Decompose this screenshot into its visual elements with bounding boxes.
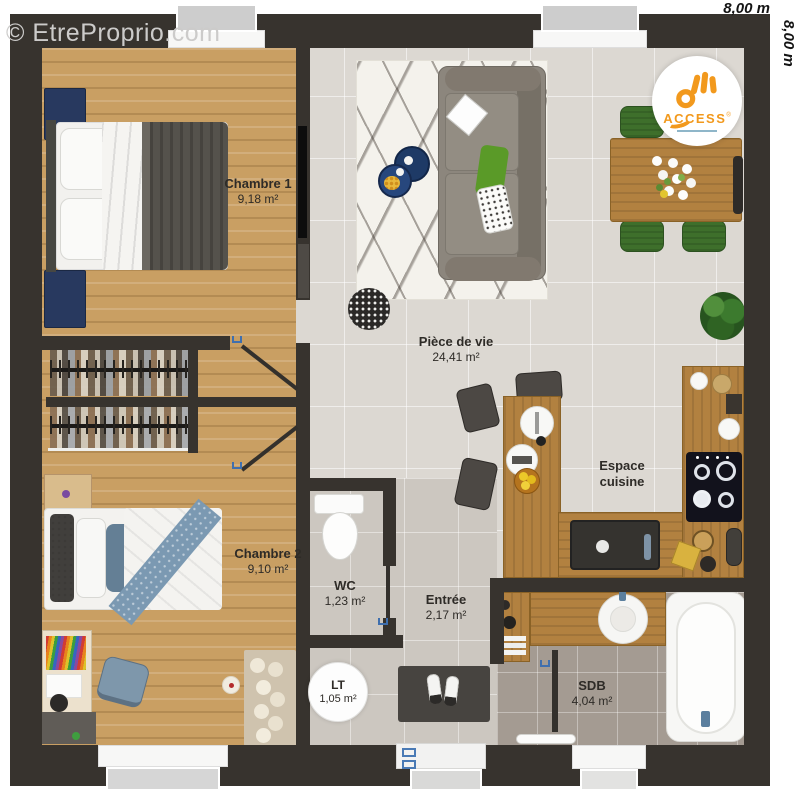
wall-dressing-top — [42, 336, 230, 350]
room-label-chambre1: Chambre 1 9,18 m² — [224, 176, 291, 207]
desk-paper — [46, 674, 82, 698]
flower-centerpiece — [652, 156, 662, 166]
sofa-armrest — [445, 67, 541, 91]
room-area: 4,04 m² — [572, 694, 613, 709]
corner-plant — [700, 292, 746, 340]
room-name: SDB — [572, 678, 613, 694]
pillow-white — [76, 518, 106, 598]
dining-chair — [620, 220, 664, 252]
room-name: Entrée — [426, 592, 467, 608]
hand-ok-icon — [671, 70, 723, 110]
room-name: WC — [325, 578, 366, 594]
dark-plate — [700, 556, 716, 572]
sink-faucet-icon — [644, 534, 651, 560]
cooktop — [686, 452, 742, 522]
outer-wall-right — [744, 14, 770, 786]
closet-shelf-edge — [48, 448, 194, 451]
flower-yellow-dot — [660, 190, 668, 198]
front-door-step — [410, 769, 482, 791]
wall-kitchen-sdb — [497, 578, 744, 592]
flower-greens — [664, 178, 671, 185]
pouf — [348, 288, 390, 330]
colored-pencils — [46, 636, 86, 670]
dark-end-chair — [733, 156, 743, 214]
room-area: 9,10 m² — [234, 562, 301, 577]
wall-dressing-mid — [46, 397, 296, 407]
window-shutter — [106, 767, 220, 791]
bed-chambre2 — [44, 508, 222, 610]
hanger-ticks — [50, 360, 192, 378]
room-label-sdb: SDB 4,04 m² — [572, 678, 613, 709]
bath-sink-basin — [610, 606, 636, 632]
headboard — [46, 120, 56, 272]
room-label-piece-de-vie: Pièce de vie 24,41 m² — [419, 334, 493, 365]
nightstand-bottom — [44, 270, 86, 328]
room-label-cuisine: Espace cuisine — [587, 458, 657, 491]
burner — [718, 492, 734, 508]
logo-tagline-bar — [677, 130, 717, 132]
bottle — [503, 616, 516, 629]
pillow-dark — [50, 514, 74, 602]
front-door-handle-icon — [402, 748, 416, 757]
wall-sdb-left — [490, 578, 504, 664]
washing-machine: LT 1,05 m² — [308, 662, 368, 722]
towel-rail — [516, 734, 576, 744]
spice-box — [726, 394, 742, 414]
dimension-top: 8,00 m — [712, 0, 770, 17]
window-shutter — [580, 769, 638, 791]
flower-bowl — [384, 176, 400, 190]
room-name: Chambre 1 — [224, 176, 291, 192]
green-toy — [72, 732, 80, 740]
mug — [404, 156, 413, 165]
wall-wc-bottom — [296, 635, 403, 648]
room-area: 24,41 m² — [419, 350, 493, 365]
hanger-ticks — [50, 416, 192, 434]
room-name: Espace cuisine — [587, 458, 657, 491]
burner — [693, 490, 711, 508]
toilet — [314, 494, 364, 514]
room-area: 9,18 m² — [224, 192, 291, 207]
window-shutter — [541, 4, 639, 32]
sofa-back — [517, 73, 541, 273]
dining-table — [610, 138, 742, 222]
bed-chambre1 — [46, 120, 228, 272]
dining-chair — [682, 220, 726, 252]
sofa-armrest — [445, 257, 541, 281]
teddy-bear — [250, 658, 265, 673]
bathtub — [666, 592, 746, 742]
kitchen-jar — [690, 372, 708, 390]
access-logo: ACCESS® — [652, 56, 742, 146]
dimension-right: 8,00 m — [780, 20, 797, 80]
burner — [716, 461, 736, 481]
room-area: 1,23 m² — [325, 594, 366, 609]
tv-console — [298, 244, 309, 298]
kitchen-jar-wood — [712, 374, 732, 394]
door-handle-icon — [378, 618, 388, 625]
door-handle-icon — [232, 336, 242, 343]
lemons — [519, 472, 528, 481]
small-plate — [718, 418, 740, 440]
window-sdb — [572, 745, 646, 769]
dark-blanket — [150, 122, 228, 270]
desk-lamp — [50, 694, 68, 712]
logo-registered-mark: ® — [726, 113, 730, 119]
outer-wall-left — [10, 14, 42, 786]
window-living — [533, 30, 647, 48]
cooktop-knobs — [696, 456, 699, 459]
cutlery — [535, 412, 539, 434]
teddy-bow-dot — [229, 683, 234, 688]
watermark: © EtreProprio.com — [6, 19, 220, 48]
wc-door-leaf — [386, 566, 390, 620]
room-label-entree: Entrée 2,17 m² — [426, 592, 467, 623]
wall-dressing-divider — [188, 345, 198, 453]
room-area-lt: 1,05 m² — [319, 693, 356, 706]
sink-drain — [596, 540, 609, 553]
room-label-chambre2: Chambre 2 9,10 m² — [234, 546, 301, 577]
lemon-bowl — [514, 468, 540, 494]
door-handle-icon — [540, 660, 550, 667]
door-handle-icon — [232, 462, 242, 469]
tv — [298, 126, 307, 238]
pan — [726, 528, 742, 566]
desk-mat — [42, 712, 96, 744]
room-label-wc: WC 1,23 m² — [325, 578, 366, 609]
wall-wc-right — [383, 478, 396, 566]
mug — [396, 168, 404, 176]
room-name: Pièce de vie — [419, 334, 493, 350]
floorplan-canvas: LT 1,05 m² Chambre 1 9,18 m² Pièce de vi… — [0, 0, 800, 800]
room-name-lt: LT — [331, 678, 345, 692]
window-chambre2 — [98, 745, 228, 767]
front-door-handle-icon — [402, 760, 416, 769]
black-cup — [536, 436, 546, 446]
burner — [694, 464, 710, 480]
wall-wc-top — [296, 478, 396, 491]
tub-faucet-icon — [701, 711, 710, 727]
room-name: Chambre 2 — [234, 546, 301, 562]
side-table-decor — [62, 490, 70, 498]
plate-item — [512, 456, 532, 464]
room-area: 2,17 m² — [426, 608, 467, 623]
sdb-door-leaf — [552, 650, 558, 732]
